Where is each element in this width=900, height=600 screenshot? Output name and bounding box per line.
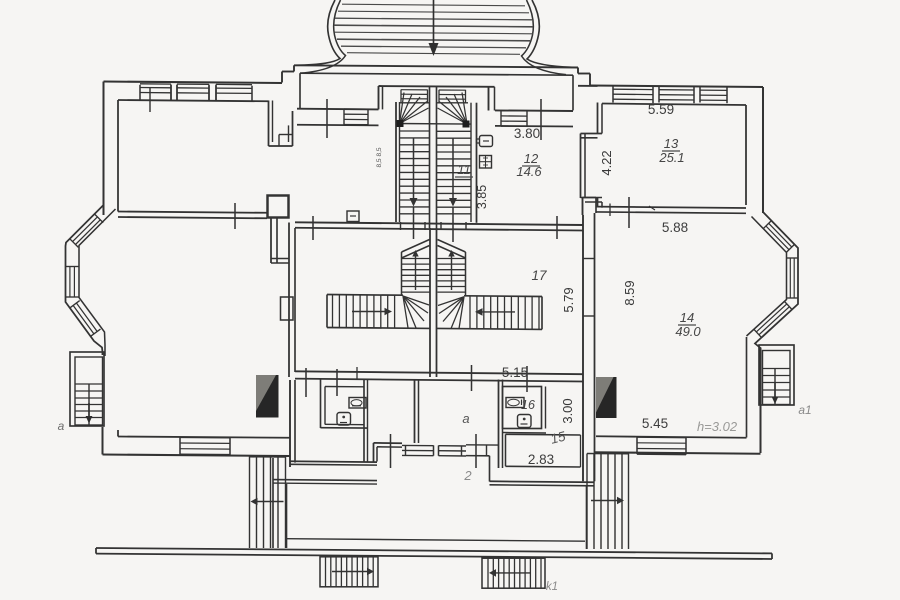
svg-text:8.59: 8.59 [622, 280, 637, 305]
svg-text:8,5: 8,5 [376, 158, 383, 167]
svg-text:a: a [462, 411, 469, 426]
svg-text:5.45: 5.45 [642, 416, 668, 431]
svg-text:3.00: 3.00 [560, 398, 575, 423]
svg-text:2: 2 [463, 468, 472, 483]
svg-text:17: 17 [531, 268, 547, 283]
svg-text:5.88: 5.88 [662, 220, 688, 235]
svg-text:16: 16 [521, 398, 535, 412]
svg-text:a: a [58, 419, 65, 433]
svg-text:49.0: 49.0 [675, 324, 701, 339]
svg-text:13: 13 [664, 136, 679, 151]
svg-text:8,5: 8,5 [376, 147, 383, 156]
svg-text:4.22: 4.22 [599, 150, 614, 175]
svg-text:h=3.02: h=3.02 [697, 419, 738, 434]
svg-text:14.6: 14.6 [516, 164, 542, 179]
svg-text:14: 14 [680, 310, 694, 325]
svg-text:25.1: 25.1 [658, 150, 684, 165]
svg-text:5.79: 5.79 [561, 287, 576, 312]
svg-text:11: 11 [457, 162, 471, 177]
svg-text:a1: a1 [798, 403, 811, 417]
svg-text:3.80: 3.80 [514, 126, 540, 141]
svg-text:2.83: 2.83 [528, 452, 554, 467]
svg-text:5.15: 5.15 [502, 365, 528, 380]
svg-text:5.59: 5.59 [648, 102, 674, 117]
svg-text:k1: k1 [546, 581, 558, 593]
svg-text:3.85: 3.85 [475, 185, 489, 209]
